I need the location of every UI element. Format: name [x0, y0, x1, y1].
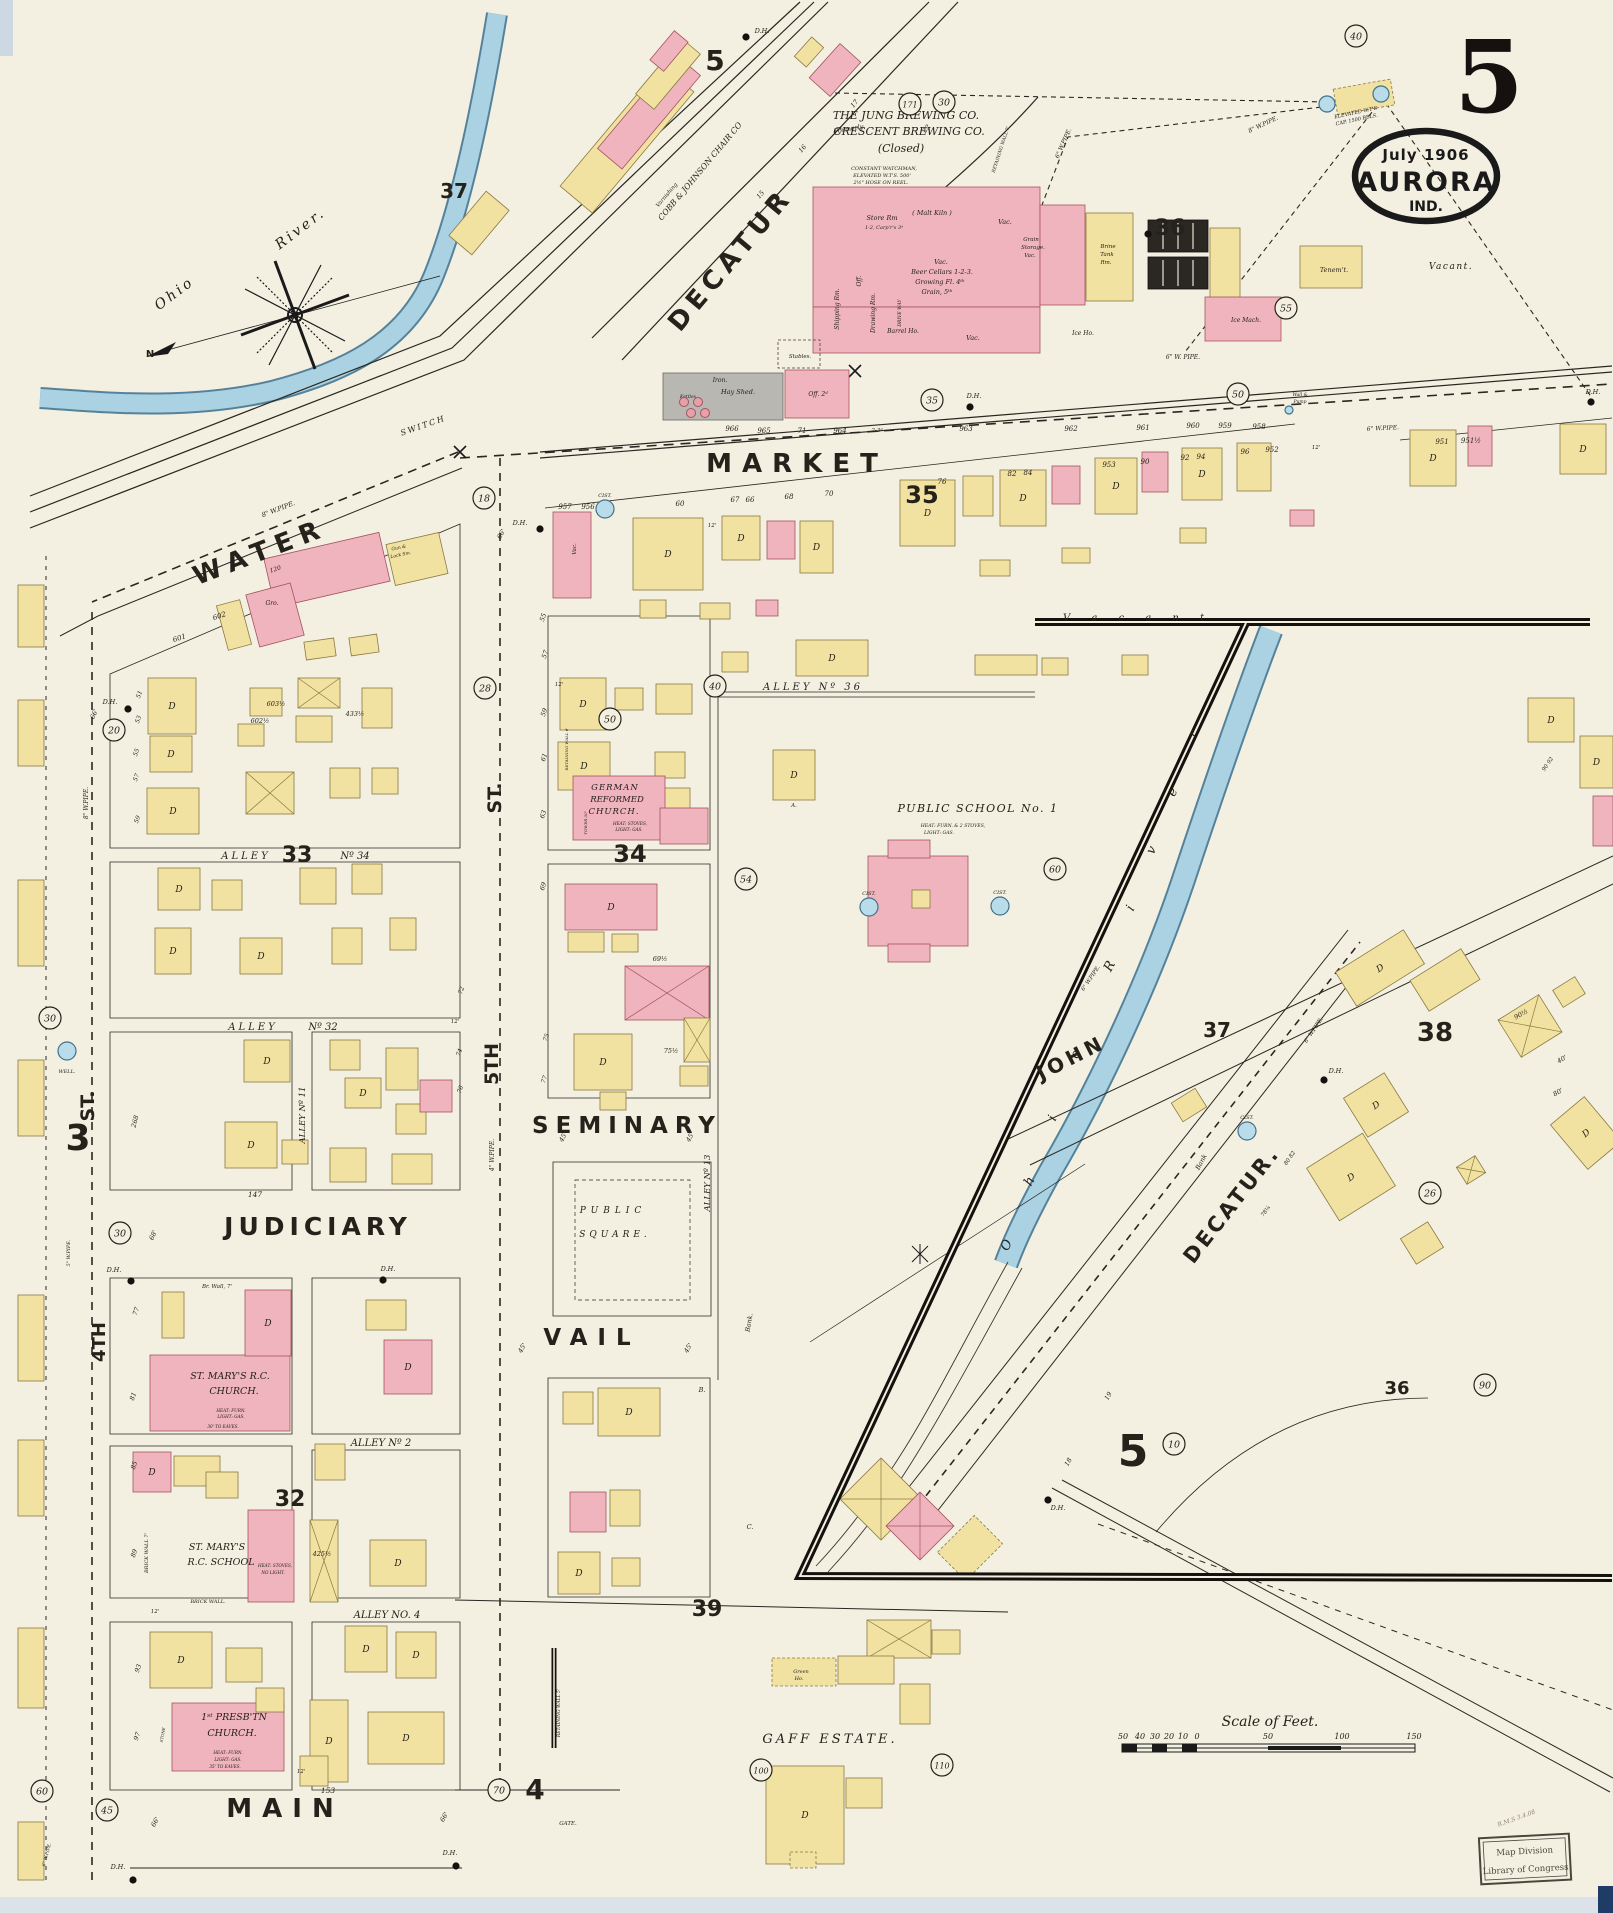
map-label: 12' [708, 523, 717, 529]
dh-label: D.H. [106, 1266, 122, 1274]
map-label: 84 [1024, 469, 1033, 477]
map-label: Pump [1292, 399, 1306, 405]
scale-tick: 0 [1194, 1732, 1199, 1741]
building [625, 966, 709, 1020]
map-label: 1-2, Carp'r's 3ᵈ [865, 225, 903, 231]
circled-number: 40 [1345, 25, 1367, 47]
building [390, 918, 416, 950]
map-label: 959 [1218, 422, 1232, 430]
title-date: July 1906 [1381, 146, 1469, 164]
building [256, 1688, 284, 1712]
cistern-label: CIST. [862, 891, 876, 897]
map-label: 2-3ᵈ [870, 427, 883, 434]
map-label: 94 [1197, 453, 1206, 461]
circled-number: 60 [1044, 858, 1066, 880]
dh-label: D.H. [442, 1849, 458, 1857]
map-label: Brine [1099, 244, 1116, 250]
street-label: ST. [484, 783, 506, 814]
map-label: 951 [1435, 438, 1448, 446]
map-label: Stables. [789, 354, 812, 360]
block-number: 37 [440, 179, 468, 203]
building: D [633, 518, 703, 590]
building [756, 600, 778, 616]
map-label: CRESCENT BREWING CO. [833, 125, 984, 138]
building-footprint [1290, 510, 1314, 526]
building-footprint [18, 1628, 44, 1708]
map-label: Off. 2ᵈ [808, 391, 828, 398]
building-footprint [932, 1630, 960, 1654]
building [315, 1444, 345, 1480]
map-label: HEAT: FURN. [215, 1408, 245, 1413]
circled-number-text: 171 [902, 101, 917, 110]
map-label: PUBLIC [579, 1206, 647, 1216]
building-footprint [226, 1648, 262, 1682]
dwelling-label: D [1018, 494, 1026, 504]
building [640, 600, 666, 618]
building-footprint [18, 585, 44, 647]
building [838, 1656, 894, 1684]
dh-label: D.H. [1328, 1067, 1344, 1075]
building: D [1000, 470, 1046, 526]
map-label: Beer Cellars 1-2-3. [910, 268, 973, 276]
building [362, 688, 392, 728]
building [680, 1066, 708, 1086]
map-label: 35' TO EAVES. [209, 1764, 240, 1769]
map-label: D.H. [754, 27, 770, 35]
circled-number: 70 [488, 1779, 510, 1801]
building [846, 1778, 882, 1808]
block-number: 37 [1203, 1018, 1231, 1042]
building-footprint [1180, 528, 1206, 543]
map-label: 69½ [653, 955, 668, 963]
building-footprint [1062, 548, 1090, 563]
circled-number: 54 [735, 868, 757, 890]
block-number: 5 [1118, 1426, 1149, 1477]
map-label: ALLEY [227, 1022, 277, 1033]
map-label: HEAT: STOVES, [257, 1563, 293, 1568]
circled-number: 171 [899, 93, 921, 115]
street-label: VAIL [543, 1325, 640, 1351]
dh-dot [742, 33, 749, 40]
map-label: Green [793, 1669, 809, 1675]
building-footprint [655, 752, 685, 778]
map-label: 12' [297, 1769, 306, 1775]
cistern-marker: CIST. [596, 493, 614, 518]
building-footprint [162, 1292, 184, 1338]
dwelling-label: D [736, 534, 744, 544]
building-footprint [392, 1154, 432, 1184]
building: D [1580, 736, 1613, 788]
circled-number-text: 50 [604, 715, 616, 726]
dwelling-label: D [827, 654, 835, 664]
map-label: B. [698, 1386, 706, 1394]
circled-number-text: 90 [1479, 1381, 1491, 1392]
building-footprint [304, 638, 336, 660]
building-footprint [332, 928, 362, 964]
cistern-marker: CIST. [991, 890, 1009, 915]
building-footprint [390, 918, 416, 950]
dwelling-label: D [606, 903, 614, 913]
map-label: ALLEY NO. 4 [353, 1610, 421, 1621]
building-footprint [680, 1066, 708, 1086]
building-footprint [656, 684, 692, 714]
map-label: 953 [1102, 461, 1116, 469]
building-footprint [660, 808, 708, 844]
map-label: 602½ [251, 717, 270, 725]
block-number: 4 [525, 1773, 544, 1806]
circled-number: 20 [103, 719, 125, 741]
map-label: GATE. [559, 1821, 577, 1827]
circled-number: 50 [599, 708, 621, 730]
circled-number: 30 [39, 1007, 61, 1029]
circled-number-text: 10 [1168, 1440, 1180, 1451]
building [300, 868, 336, 904]
block-number: 36 [1384, 1378, 1409, 1399]
building [304, 638, 336, 660]
scale-title: Scale of Feet. [1222, 1714, 1319, 1730]
map-label: 1ˢᵗ PRESB'TN [201, 1712, 268, 1723]
scale-tick: 40 [1134, 1732, 1145, 1741]
map-label: 76 [938, 478, 947, 486]
dwelling-label: D [578, 700, 586, 710]
dwelling-label: D [166, 750, 174, 760]
building-footprint [980, 560, 1010, 576]
building [18, 880, 44, 966]
map-label: Ice Mach. [1230, 317, 1261, 324]
map-label: (Closed) [878, 142, 924, 155]
map-label: LIGHT: GAS. [923, 830, 954, 836]
cistern-circle [860, 898, 878, 916]
building-footprint [315, 1444, 345, 1480]
building-footprint [1593, 796, 1613, 846]
map-label: CHURCH. [209, 1386, 258, 1397]
building: D [150, 736, 192, 772]
map-label: Off. [856, 275, 863, 286]
building: D [1410, 430, 1456, 486]
map-label: Drawing Rm. [870, 293, 877, 334]
sanborn-map-sheet: DDDDDDDDDDDDDDDDDDDDDDDDDDDDDDDDDDDDDDDD… [0, 0, 1613, 1913]
map-label: ALLEY Nº 36 [762, 682, 863, 693]
building [1210, 228, 1240, 298]
map-label: 12' [451, 1019, 460, 1025]
building [813, 307, 1040, 353]
map-label: 956 [581, 503, 595, 511]
map-label: 958 [1252, 423, 1266, 431]
map-label: C. [747, 1523, 754, 1531]
cistern-circle [596, 500, 614, 518]
building [298, 678, 340, 708]
circled-number: 50 [1227, 383, 1249, 405]
dwelling-label: D [358, 1089, 366, 1099]
map-label: LIGHT: GAS. [216, 1414, 244, 1419]
building [888, 944, 930, 962]
building [932, 1630, 960, 1654]
map-label: 82 [1008, 470, 1017, 478]
building-footprint [18, 1295, 44, 1381]
building [568, 932, 604, 952]
sheet-number: 5 [1454, 18, 1524, 136]
building [963, 476, 993, 516]
dwelling-label: D [663, 550, 671, 560]
map-label: GAFF ESTATE. [762, 1732, 897, 1747]
building [18, 700, 44, 766]
building [212, 880, 242, 910]
map-label: Iron. [712, 377, 728, 384]
map-label: CHURCH. [207, 1728, 256, 1739]
dh-dot [129, 1876, 136, 1883]
dh-label: D.H. [102, 698, 118, 706]
circled-number: 26 [1419, 1182, 1441, 1204]
building [563, 1392, 593, 1424]
building [18, 1822, 44, 1880]
dwelling-label: D [168, 947, 176, 957]
dh-label: D.H. [380, 1265, 396, 1273]
building [226, 1648, 262, 1682]
building: D [133, 1452, 171, 1492]
cistern-marker [1319, 96, 1335, 112]
map-label: 75½ [664, 1047, 679, 1055]
building [1062, 548, 1090, 563]
building [912, 890, 930, 908]
building: D [558, 1552, 600, 1594]
dwelling-label: D [411, 1651, 419, 1661]
circled-number: 60 [31, 1780, 53, 1802]
map-label: 433½ [345, 710, 365, 718]
map-label: GERMAN [591, 783, 639, 793]
map-label: 425½ [312, 1550, 332, 1558]
building [610, 1490, 640, 1526]
kettle-circle [687, 409, 696, 418]
building: D [368, 1712, 444, 1764]
building: D [574, 1034, 632, 1090]
building [655, 752, 685, 778]
building [352, 864, 382, 894]
map-label: Vac. [572, 543, 578, 555]
map-label: Rm. [1099, 260, 1111, 266]
circled-number-text: 54 [740, 875, 752, 886]
building [1042, 658, 1068, 675]
building [18, 1295, 44, 1381]
building-footprint [563, 1392, 593, 1424]
building-footprint [296, 716, 332, 742]
building-footprint [256, 1688, 284, 1712]
circled-number-text: 55 [1280, 304, 1292, 315]
map-label: 147 [248, 1190, 263, 1199]
cistern-circle [991, 897, 1009, 915]
block-number: 34 [613, 840, 646, 868]
map-label: CHURCH. [588, 807, 639, 817]
building-footprint [888, 840, 930, 858]
dwelling-label: D [401, 1734, 409, 1744]
map-label: LIGHT: GAS. [614, 827, 642, 832]
building: D [345, 1626, 387, 1672]
building: D [1560, 424, 1606, 474]
map-label: 12' [151, 1609, 160, 1615]
map-label: Vac. [966, 334, 980, 342]
map-label: BRICK WALL 7' [144, 1533, 150, 1574]
building: D [722, 516, 760, 560]
street-label: 3 [65, 1118, 90, 1159]
cistern-label: CIST. [598, 493, 612, 499]
scale-tick: 50 [1118, 1732, 1128, 1741]
map-label: RETAINING WALL 6' [564, 728, 569, 772]
map-label: 60 [676, 500, 685, 508]
dh-label: D.H. [966, 392, 982, 400]
building [420, 1080, 452, 1112]
building-footprint [568, 932, 604, 952]
building-footprint [1052, 466, 1080, 504]
building-footprint [767, 521, 795, 559]
dwelling-label: D [923, 509, 931, 519]
title-state: IND. [1409, 199, 1443, 215]
dh-marker [742, 33, 749, 40]
map-label: HEAT: FURN. & 2 STOVES, [920, 823, 986, 829]
block-number: 32 [275, 1487, 306, 1512]
building-footprint [18, 1822, 44, 1880]
cistern-circle [58, 1042, 76, 1060]
map-label: 963 [959, 425, 973, 433]
scale-tick: 20 [1163, 1732, 1174, 1741]
circled-number-text: 30 [938, 98, 950, 109]
circled-number-text: 60 [36, 1787, 48, 1798]
map-label: DRIVE WAY [897, 298, 903, 327]
map-label: ALLEY Nº 11 [298, 1087, 308, 1145]
scale-tick: 50 [1263, 1732, 1273, 1741]
map-label: Vacant. [1429, 262, 1473, 272]
building-footprint [1210, 228, 1240, 298]
dwelling-label: D [263, 1319, 271, 1329]
map-label: CONSTANT WATCHMAN, [851, 166, 917, 172]
building [612, 934, 638, 952]
map-label: V a c a n t [1063, 613, 1213, 624]
building-footprint [1122, 655, 1148, 675]
map-label: Grain, 5ᵗʰ [921, 288, 952, 296]
map-label: TOWER 30' [583, 811, 588, 834]
building [656, 684, 692, 714]
map-label: Barrel Ho. [886, 328, 919, 335]
building [660, 808, 708, 844]
circled-number-text: 110 [934, 1762, 949, 1771]
map-label: 951½ [1461, 437, 1481, 445]
building [722, 652, 748, 672]
kettle-circle [680, 398, 689, 407]
dh-dot [1320, 1076, 1327, 1083]
map-label: ELEVATED W.T'S. 500' [852, 173, 911, 179]
map-label: ALLEY [220, 851, 270, 862]
cistern-circle [1238, 1122, 1256, 1140]
building: D [147, 788, 199, 834]
map-label: 6" W. PIPE. [1166, 354, 1200, 361]
building-footprint [349, 634, 379, 656]
cistern-circle [1319, 96, 1335, 112]
building-footprint [610, 1490, 640, 1526]
dwelling-label: D [1592, 758, 1600, 768]
building [310, 1520, 338, 1602]
street-label: JUDICIARY [222, 1212, 412, 1241]
building [330, 768, 360, 798]
scan-edge-top-left [0, 0, 13, 56]
circled-number-text: 30 [44, 1014, 56, 1025]
scan-edge-bottom [0, 1897, 1613, 1913]
building-footprint [362, 688, 392, 728]
map-label: Storage. [1021, 245, 1045, 251]
building: D [384, 1340, 432, 1394]
map-label: Hay Shed. [720, 388, 755, 396]
map-label: 952 [1265, 446, 1279, 454]
dh-dot [452, 1862, 459, 1869]
scale-tick: 30 [1150, 1732, 1160, 1741]
circled-number-text: 20 [107, 726, 120, 737]
scan-edge-corner [1598, 1886, 1613, 1913]
cistern-label: CIST. [993, 890, 1007, 896]
building [612, 1558, 640, 1586]
dh-label: D.H. [1585, 388, 1601, 396]
circled-number-text: 40 [708, 682, 721, 693]
building [246, 772, 294, 814]
building-footprint [600, 1092, 626, 1110]
circled-number: 100 [750, 1759, 772, 1781]
map-label: 153 [321, 1786, 336, 1795]
circled-number-text: 45 [100, 1806, 113, 1817]
map-label: 96 [1241, 448, 1250, 456]
circled-number-text: 28 [478, 684, 491, 695]
cistern-marker: CIST. [860, 891, 878, 916]
building-footprint [756, 600, 778, 616]
building [330, 1148, 366, 1182]
circled-number-text: 35 [926, 396, 938, 407]
building-footprint [838, 1656, 894, 1684]
building-footprint [386, 1048, 418, 1090]
building-footprint [18, 700, 44, 766]
dwelling-label: D [147, 1468, 155, 1478]
building: D [1528, 698, 1574, 742]
map-label: Vac. [934, 258, 948, 266]
map-label: Grain [1023, 237, 1039, 243]
map-label: 71 [798, 427, 807, 435]
map-label: PUBLIC SCHOOL No. 1 [896, 802, 1058, 815]
building: D [244, 1040, 290, 1082]
dwelling-label: D [361, 1645, 369, 1655]
map-label: Gro. [265, 600, 278, 607]
building [867, 1620, 931, 1658]
dwelling-label: D [1111, 482, 1119, 492]
dwelling-label: D [1578, 445, 1586, 455]
building [1148, 257, 1208, 289]
map-label: HEAT: STOVES, [612, 821, 648, 826]
map-label: N [146, 349, 154, 360]
dh-dot [1044, 1496, 1051, 1503]
circled-number: 35 [921, 389, 943, 411]
map-label: ALLEY Nº 13 [703, 1155, 713, 1213]
dh-label: D.H. [512, 519, 528, 527]
dh-label: D.H. [1050, 1504, 1066, 1512]
dwelling-label: D [1428, 454, 1436, 464]
building [600, 1092, 626, 1110]
building [332, 928, 362, 964]
building [162, 1292, 184, 1338]
building [980, 560, 1010, 576]
building [296, 716, 332, 742]
map-label: 966 [725, 425, 739, 433]
scale-tick: 10 [1178, 1732, 1188, 1741]
building: D [1095, 458, 1137, 514]
map-label: 30' TO EAVES. [207, 1424, 238, 1429]
dwelling-label: D [176, 1656, 184, 1666]
circled-number: 18 [473, 487, 495, 509]
block-number: 36 [1155, 216, 1186, 241]
building [1122, 655, 1148, 675]
building-footprint [790, 1852, 816, 1868]
